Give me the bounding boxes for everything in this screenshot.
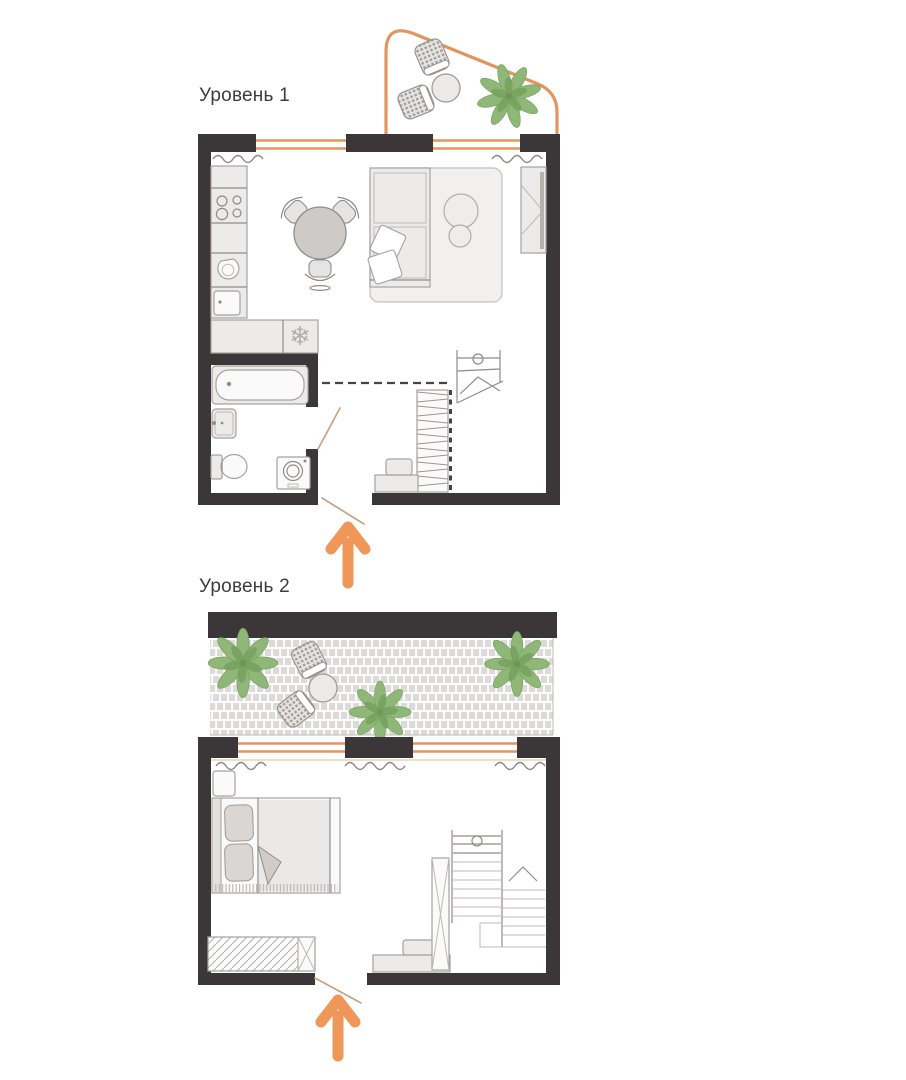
entrance-arrow-icon xyxy=(331,527,365,583)
round-table-icon xyxy=(432,74,460,102)
level2-plan xyxy=(198,612,560,1056)
entrance-level2 xyxy=(315,978,361,1056)
door-swing-icon xyxy=(318,408,340,449)
entrance-arrow-icon xyxy=(321,1000,355,1056)
wardrobe-icon xyxy=(208,937,315,971)
window-icon xyxy=(256,141,346,149)
floor-plan-page: Уровень 1 Уровень 2 xyxy=(0,0,906,1080)
window-icon xyxy=(433,141,520,149)
wicker-chair-icon xyxy=(413,37,451,77)
nightstand-icon xyxy=(213,771,235,796)
radiator-icon xyxy=(495,763,545,770)
entrance-level1 xyxy=(322,498,365,583)
door-swing-icon xyxy=(322,498,364,524)
kitchen-sink-icon xyxy=(214,291,240,315)
stair-railing-icon xyxy=(453,836,501,853)
terrace xyxy=(202,612,557,756)
dining-set xyxy=(277,193,364,291)
toilet-icon xyxy=(211,455,247,480)
wicker-chair-icon xyxy=(396,83,436,121)
staircase xyxy=(432,830,546,970)
pillow-icon xyxy=(224,844,253,882)
pouf-icon xyxy=(444,194,478,228)
tall-cabinet-icon xyxy=(432,858,449,970)
window-icon xyxy=(238,744,345,752)
sink-icon xyxy=(218,259,239,279)
bed-fringe xyxy=(215,884,338,892)
dining-table-icon xyxy=(294,207,346,259)
round-table-icon xyxy=(309,674,337,702)
kitchen: ❄ xyxy=(211,166,318,353)
living-zone xyxy=(367,168,502,302)
dining-chair-icon xyxy=(305,260,335,281)
radiator-icon xyxy=(345,763,405,770)
double-bed-icon xyxy=(212,798,340,893)
bathroom-wall xyxy=(198,353,318,365)
wardrobe-icon xyxy=(521,167,546,253)
sofa-icon xyxy=(367,168,430,287)
stair-railing-icon xyxy=(457,350,503,403)
floor-plan-drawing: ❄ xyxy=(0,0,906,1080)
balcony xyxy=(386,31,557,139)
bathtub-icon xyxy=(212,366,308,404)
bench-icon xyxy=(375,475,418,492)
radiator-icon xyxy=(492,156,542,163)
staircase xyxy=(375,350,503,492)
plant-icon xyxy=(467,54,552,139)
radiator-icon xyxy=(216,763,266,770)
bench-icon xyxy=(386,459,412,475)
washing-machine-icon xyxy=(277,457,310,489)
window-icon xyxy=(413,744,517,752)
washbasin-icon xyxy=(212,409,236,438)
staircase-icon xyxy=(452,830,546,947)
bedroom xyxy=(208,771,450,972)
snowflake-fridge-icon: ❄ xyxy=(289,322,311,352)
level1-plan: ❄ xyxy=(198,31,560,583)
side-table-icon xyxy=(449,225,471,247)
bathroom xyxy=(211,366,340,489)
radiator-icon xyxy=(213,156,263,163)
stair-up-arrow-icon xyxy=(509,867,537,881)
pillow-icon xyxy=(224,805,253,842)
